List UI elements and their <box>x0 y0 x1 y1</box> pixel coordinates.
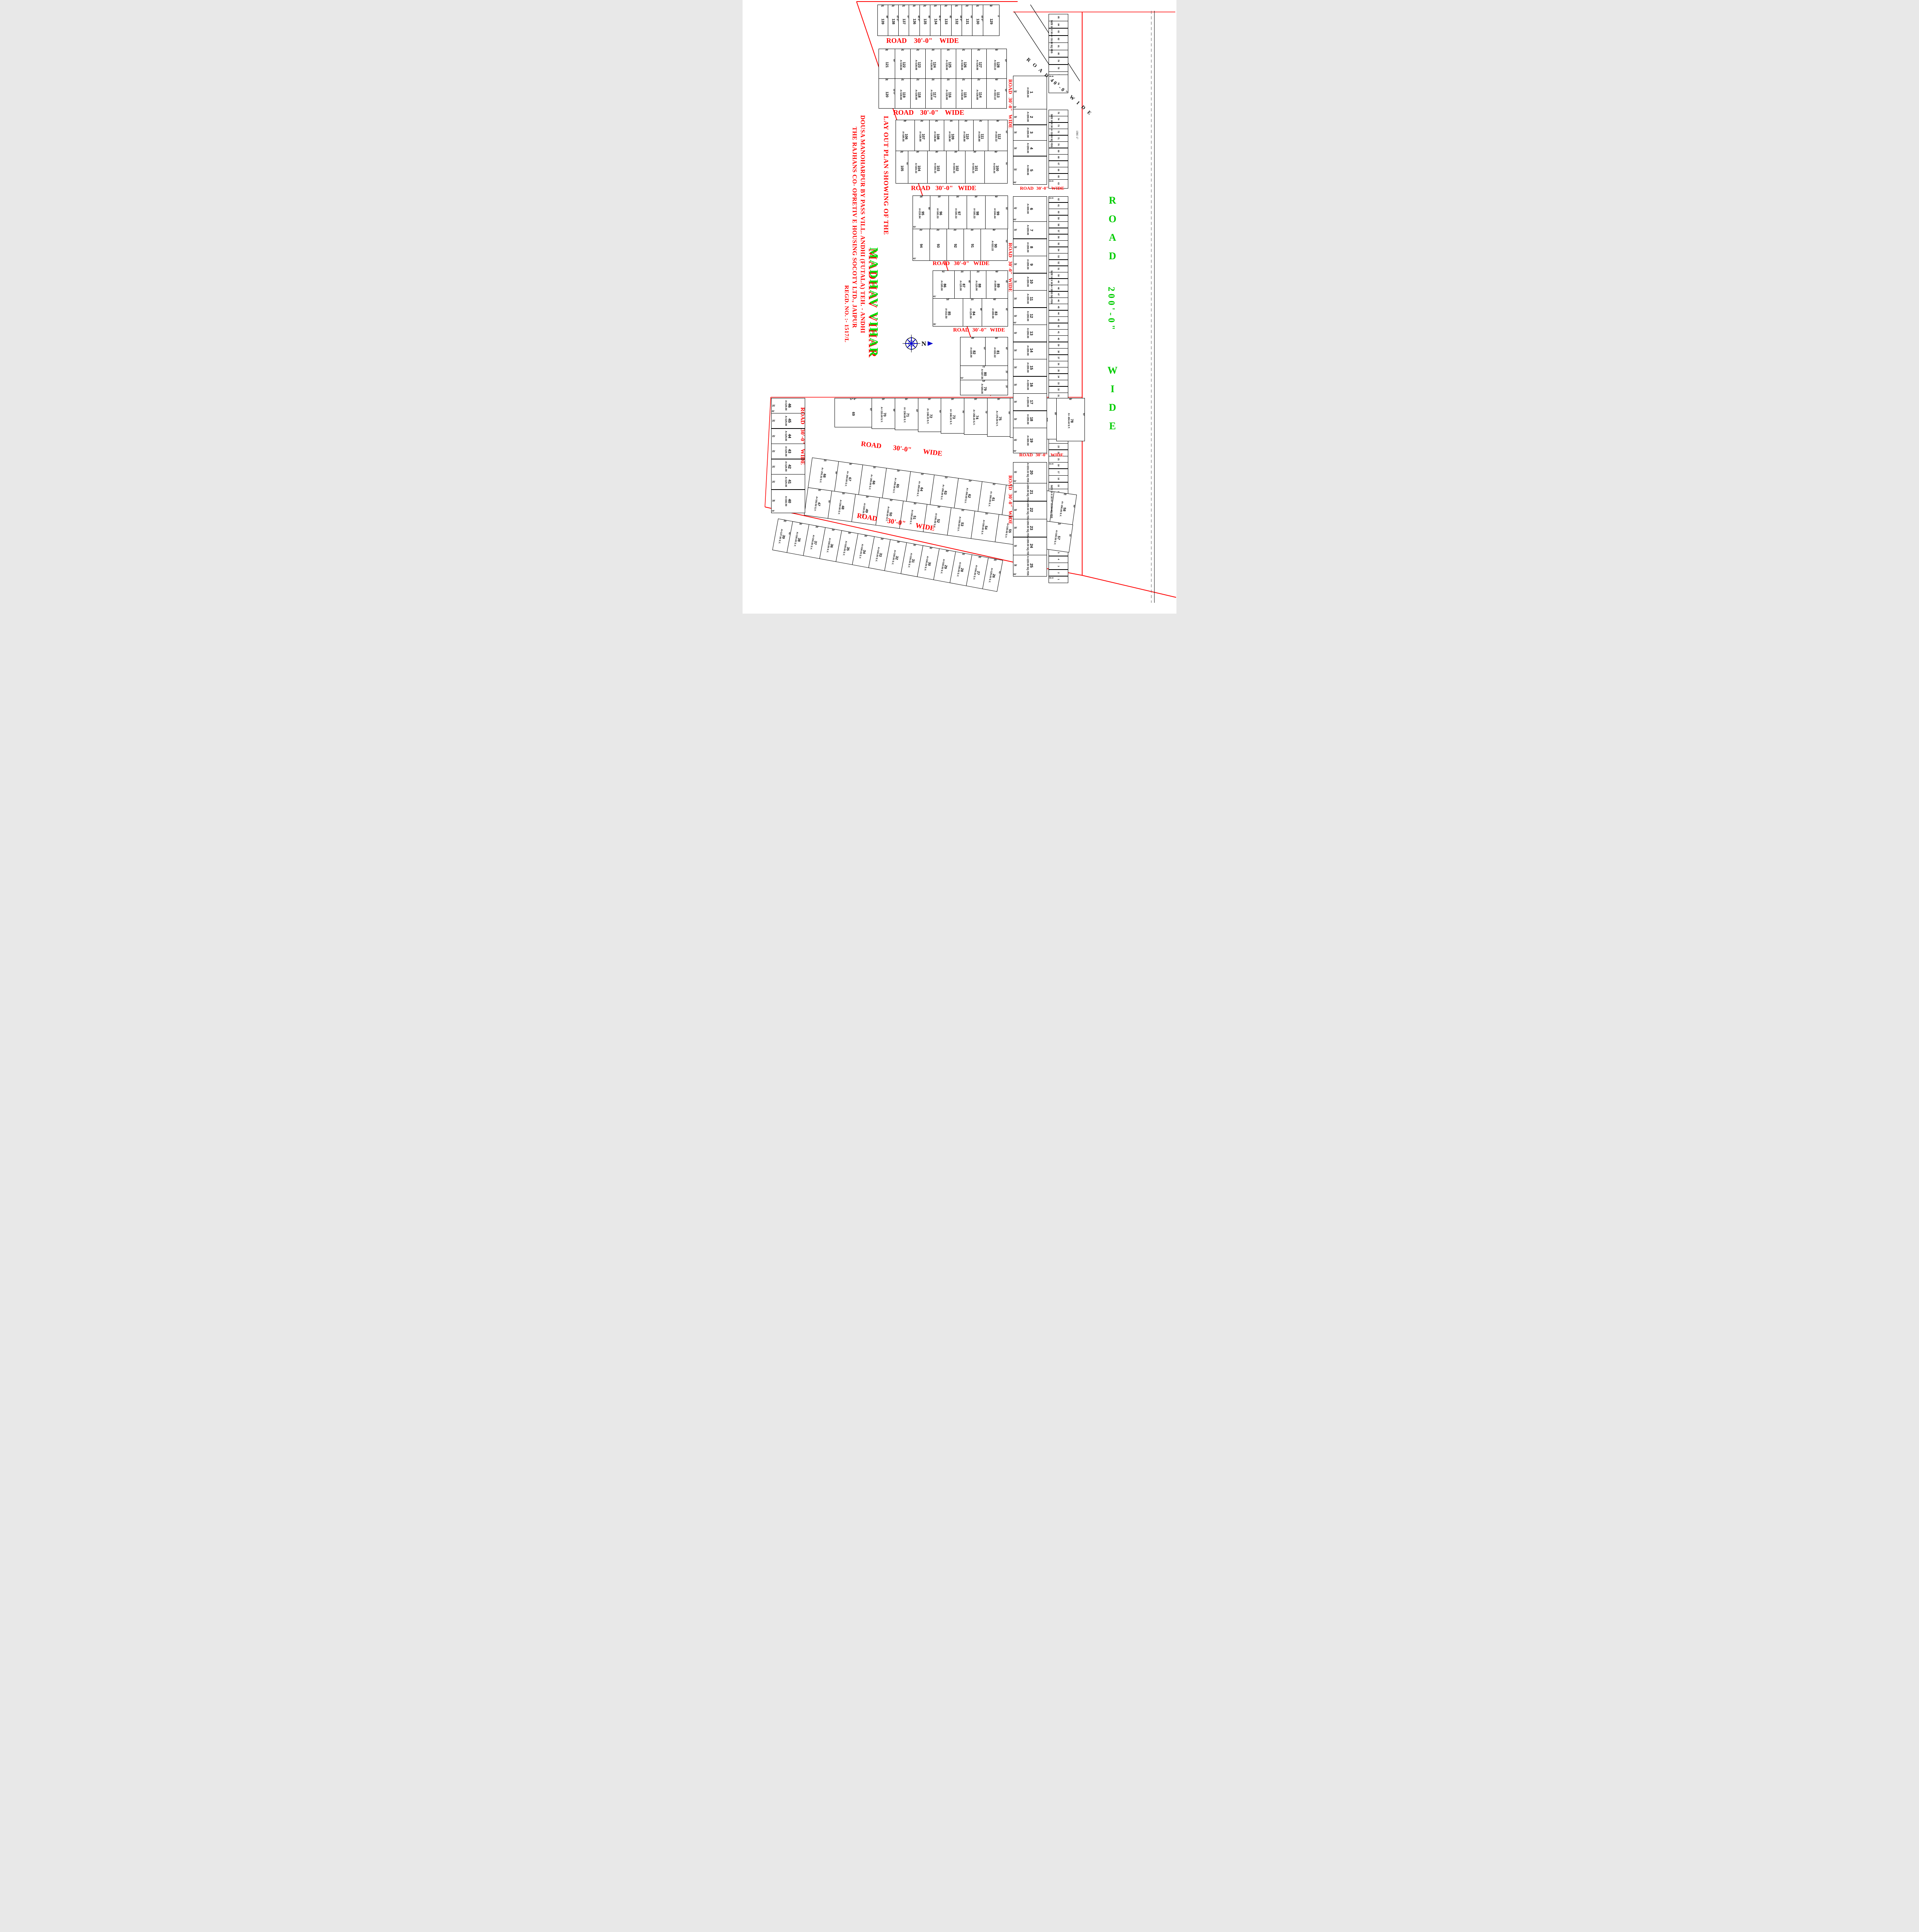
road-label: ROAD 30'-0" WIDE <box>799 407 806 465</box>
plot-number: 114 <box>978 92 982 98</box>
plot-cell: 20'13747' <box>898 5 909 36</box>
plot-number: 121 <box>885 62 889 68</box>
plot-depth-dim: 30' <box>1014 332 1017 335</box>
plot-area: A=183.33 <box>914 163 917 173</box>
plot-cell: 30'A=200.0015 <box>1013 359 1047 376</box>
strip-plot-number: 2 <box>1057 572 1059 573</box>
plot-width-dim: 25' <box>931 49 935 52</box>
strip-plot-cell: 17 <box>1049 469 1068 476</box>
plot-width-dim: 36' <box>885 49 888 52</box>
plot-number: 38 <box>797 538 802 543</box>
plot-number: 55 <box>1008 529 1012 533</box>
strip-plot-number: 65 <box>1057 175 1059 178</box>
plot-cell: 30'A=200.0011 <box>1013 290 1047 308</box>
road-label: ROAD 30'-0" WIDE <box>886 37 959 45</box>
strip-plot-number: 55 <box>1057 243 1059 245</box>
plot-extra-dim: 60' <box>1014 219 1016 221</box>
plot-cell: 20'13445'-6" <box>930 5 941 36</box>
strip-plot-cell: 66 <box>1049 167 1068 173</box>
plot-depth-dim: 25' <box>772 451 775 453</box>
strip-plot-cell: 61 <box>1049 202 1068 209</box>
plot-cell: 30'A=183.3396 <box>930 196 949 229</box>
plot-number: 81 <box>996 350 1000 354</box>
plot-number: 23 <box>1029 526 1033 530</box>
plot-cell: 54'A=169.007926' <box>960 380 1008 395</box>
plot-number: 57 <box>1057 536 1061 540</box>
strip-plot-cell: 35 <box>1049 367 1068 374</box>
plot-area: A=200.00 <box>991 308 994 318</box>
plot-area: A=200.00 <box>1027 397 1029 407</box>
plot-cell: 39'A=182.504034' <box>771 490 805 513</box>
plot-area: A=138.88 <box>899 90 902 100</box>
strip-plot-number: 16 <box>1057 478 1059 480</box>
plot-cell: 25'A=125.0088 <box>970 270 986 299</box>
plot-number: 34 <box>862 550 867 554</box>
plot-depth-dim: 30' <box>1014 545 1017 548</box>
plot-number: 1 <box>1029 91 1033 94</box>
plot-cell: 30'A=200.0016 <box>1013 376 1047 394</box>
plot-width-dim: 25' <box>916 49 920 52</box>
plot-number: 118 <box>918 92 921 98</box>
strip-plot-area: 50.00 <box>1049 197 1054 199</box>
plot-number: 84 <box>972 311 976 315</box>
plot-number: 66 <box>872 481 876 485</box>
plot-cell: 25'A=125.008745' <box>954 270 971 299</box>
strip-plot-number: 57 <box>1057 230 1059 232</box>
plot-cell: 25'91 <box>964 229 981 261</box>
plot-area: A= 404.44 S.Y. <box>1067 413 1070 429</box>
plot-cell: 45'A=300.001960' <box>1013 428 1047 453</box>
strip-plot-cell: 59 <box>1049 215 1068 222</box>
plot-area: A=200.00 <box>994 281 996 291</box>
plot-area: A=200.00 <box>1027 414 1029 424</box>
strip-plot-number: 18 <box>1057 464 1059 466</box>
plot-width-dim: 30' <box>928 398 931 401</box>
plot-area: A=138.88 <box>933 131 936 141</box>
plot-number: 139 <box>881 19 885 24</box>
plot-number: 95 <box>921 211 925 215</box>
plot-cell: 25'A=138.88124 <box>925 49 941 79</box>
title-line-1: LAY OUT PLAN SHOWING OF THE <box>882 111 890 409</box>
strip-plot-number: 41 <box>1057 331 1059 333</box>
strip-plot-cell: 4 <box>1049 556 1068 563</box>
plot-number: 64 <box>920 487 924 492</box>
strip-plot-number: 68 <box>1057 156 1059 158</box>
plot-cell: 30'A= 258.33 S.Y.7479' <box>964 398 988 435</box>
plot-number: 5 <box>1029 169 1033 172</box>
plot-number: 45 <box>787 418 792 423</box>
plot-depth-dim: 55' <box>1014 169 1017 171</box>
plot-cell: 30'A=183.33104 <box>908 151 927 184</box>
plot-area: A=200.00 <box>1027 311 1029 321</box>
plot-depth-dim: 60' <box>1073 505 1075 508</box>
plot-number: 32 <box>895 556 899 560</box>
strip-plot-cell: 57 <box>1049 228 1068 235</box>
strip-plot-number: 70 <box>1057 143 1059 146</box>
plot-depth-dim: 30' <box>1014 315 1017 318</box>
plot-area: A=138.88 <box>960 60 963 70</box>
plot-depth-dim: 30' <box>1014 247 1017 249</box>
strip-plot-cell: 53 <box>1049 253 1068 260</box>
strip-plot-number: 37 <box>1057 357 1059 359</box>
strip-plot-number: 31 <box>1057 395 1059 397</box>
strip-plot-number: 84 <box>1057 24 1059 26</box>
plot-width-dim: 25' <box>962 79 965 82</box>
plot-width-dim: 25' <box>937 229 940 232</box>
block-113-128: 36'12150'25'A=138.8812225'A=138.8812325'… <box>879 49 1007 108</box>
plot-cell: 25'A=138.88127 <box>971 49 987 79</box>
plot-cell: 25'A=125.0041 <box>771 474 805 490</box>
plot-area: A=195.55 <box>902 131 904 141</box>
strip-plot-cell: 56 <box>1049 234 1068 241</box>
plot-width-dim: 25' <box>920 229 923 232</box>
strip-plot-number: 23 <box>1057 446 1059 448</box>
strip-plot-number: 5 <box>1057 552 1059 553</box>
plot-cell: 30'A=200.008 <box>1013 239 1047 256</box>
strip-size-label: SIZE 10 X 30 A= 33.33 SQ.YDS <box>1050 114 1052 147</box>
plot-extra-dim: 60' <box>1014 182 1016 184</box>
boundary-dimension: 1581'-1" <box>1076 131 1078 139</box>
strip-plot-cell: 1850.00 <box>1049 462 1068 469</box>
plot-number: 106 <box>904 134 908 139</box>
strip-plot-cell: 67 <box>1049 161 1068 167</box>
plot-cell: 40'A= 404.44 S.Y.7893' <box>1056 398 1085 441</box>
road-label: ROAD 30'-0" WIDE <box>953 327 1005 333</box>
strip-plot-number: 82 <box>1057 38 1059 40</box>
plot-cell: 25'A=125.008445' <box>963 298 982 327</box>
plot-cell: 40'A=200.008945' <box>986 270 1008 299</box>
plot-width-dim: 20' <box>934 5 937 8</box>
compass-rose: N <box>902 332 935 355</box>
strip-size-label: SIZE 10 X 30 A= 33.33 SQ.YDS <box>1050 485 1052 518</box>
plot-area: A=200.00 <box>1027 345 1029 355</box>
plot-number: 120 <box>885 92 889 97</box>
strip-plot-cell: 60 <box>1049 209 1068 215</box>
plot-area: A=169.00 <box>981 384 983 394</box>
plot-number: 128 <box>996 62 1000 68</box>
strip-plot-number: 73 <box>1057 124 1059 127</box>
plot-number: 132 <box>955 19 959 24</box>
plot-area: A=138.88 <box>919 131 921 141</box>
plot-cell: 30'A=200.0018 <box>1013 411 1047 428</box>
plot-number: 68 <box>823 474 827 478</box>
plot-cell: 49'A=225.008250' <box>960 337 986 366</box>
plot-area: A=183.33 <box>973 208 975 218</box>
strip-plot-cell: 43 <box>1049 316 1068 323</box>
plot-area: A=255.00 <box>1027 87 1029 97</box>
plot-number: 137 <box>902 19 906 24</box>
plot-depth-dim: 39' <box>772 500 775 502</box>
plot-width-dim: 20' <box>881 5 884 8</box>
plot-number: 67 <box>848 477 852 481</box>
plot-number: 24 <box>1029 544 1033 548</box>
plot-width-dim: 20' <box>892 5 895 8</box>
plot-number: 87 <box>962 284 965 287</box>
plot-number: 86 <box>943 284 947 287</box>
plot-width-dim: 30' <box>938 196 941 199</box>
plot-depth-dim: 25' <box>772 466 775 468</box>
plot-number: 110 <box>965 134 969 139</box>
plot-area: A=125.00 <box>785 461 787 471</box>
plot-number: 27 <box>976 571 981 575</box>
plot-number: 53 <box>960 522 964 527</box>
plot-width-dim: 25' <box>916 79 920 82</box>
plot-number: 108 <box>936 134 940 139</box>
plot-cell: 25'A=138.88109 <box>944 120 959 151</box>
plot-width-dim: 40' <box>990 5 993 8</box>
plot-number: 4 <box>1029 147 1033 150</box>
plot-number: 134 <box>934 19 938 24</box>
plot-cell: 30'A=183.3398 <box>967 196 986 229</box>
strip-plot-cell: 79 <box>1049 57 1068 65</box>
plot-area: A= 258.33 S.Y. <box>972 410 975 425</box>
plot-depth-dim: 50' <box>1005 131 1007 133</box>
plot-cell: 34'A=182.50 S.Y.5745'39' <box>1042 520 1073 552</box>
plot-area: A=200.00 SQ.YDS <box>1027 519 1029 537</box>
plot-extra-dim: 45' <box>772 410 775 413</box>
strip-plot-number: 50 <box>1057 274 1059 277</box>
plot-number: 58 <box>1062 507 1067 512</box>
plot-width-dim: 25' <box>979 120 982 123</box>
plot-area: A=222.22 <box>991 241 993 251</box>
strip-plot-number: 44 <box>1057 312 1059 315</box>
title-line-2: DOUSA MANOHARPUR BY PASS VILL. ANDHI (FU… <box>859 111 866 409</box>
plot-area: A=244.44 <box>993 208 996 218</box>
plot-number: 31 <box>911 559 916 563</box>
plot-area: A=138.88 <box>960 90 963 100</box>
strip-plot-cell: 54 <box>1049 247 1068 253</box>
plot-area: A=212.50 <box>945 308 947 318</box>
plot-number: 54 <box>984 526 988 530</box>
plot-depth-dim: 36' <box>1014 565 1017 567</box>
plot-number: 70 <box>883 413 887 417</box>
east-road-dimension: 200'-0" <box>1106 287 1116 332</box>
plot-cell: 30'A=200.002 <box>1013 109 1047 125</box>
plot-area: A=138.88 <box>899 60 902 70</box>
plot-cell: 30'A=200.001260' <box>1013 308 1047 325</box>
plot-width-dim: 30' <box>973 151 976 154</box>
plot-width-dim: 30' <box>916 151 920 154</box>
plot-number: 17 <box>1029 400 1033 404</box>
plot-width-dim: 25' <box>901 49 904 52</box>
road-label: ROAD 30'-0" WIDE <box>1007 79 1013 128</box>
plot-width-dim: 40' <box>994 151 998 154</box>
plot-area: A=200.00 <box>1027 277 1029 287</box>
plot-width-dim: 40' <box>995 196 998 199</box>
plot-width-dim: 25' <box>971 229 974 232</box>
plot-number: 69 <box>852 412 855 416</box>
block-90-99: 28'A=216.949555'43'30'A=183.339630'A=183… <box>913 196 1008 260</box>
plot-number: 125 <box>948 62 952 68</box>
strip-plot-cell: 68 <box>1049 154 1068 161</box>
plot-extra-dim: 60' <box>1014 322 1016 324</box>
compass-north-arrow <box>928 341 933 346</box>
plot-depth-dim: 25' <box>772 420 775 422</box>
plot-width-dim: 20' <box>955 5 958 8</box>
plot-cell: 40'A=244.4410055' <box>984 151 1008 184</box>
plot-width-dim: 25' <box>920 120 923 123</box>
plot-cell: 20'13043'-6" <box>972 5 983 36</box>
plot-cell: 20'13847'-6" <box>888 5 899 36</box>
plot-number: 40 <box>787 499 792 503</box>
plot-depth-dim: 30' <box>1014 350 1017 352</box>
plot-area: A=216.94 <box>918 208 920 218</box>
plot-area: A=300.00 <box>1027 204 1029 214</box>
plot-area: A=200.00 <box>1027 380 1029 390</box>
plot-number: 33 <box>878 553 883 558</box>
plot-area: A=125.00 <box>785 477 787 487</box>
plot-cell: 20'13546' <box>920 5 930 36</box>
plot-cell: 20'10555' <box>896 151 909 184</box>
plot-width-dim: 25' <box>977 49 981 52</box>
plot-number: 37 <box>813 541 818 545</box>
plot-area: A=233.33 SQ.YDS <box>1027 463 1029 483</box>
strip-plot-number: 81 <box>1057 45 1059 48</box>
plot-cell: 20'13244'-6" <box>951 5 962 36</box>
plot-width-dim: 25' <box>947 49 950 52</box>
plot-cell: 25'A=138.88115 <box>956 78 971 109</box>
plot-width-dim: 41' <box>942 271 945 274</box>
strip-plot-cell: 41 <box>1049 329 1068 336</box>
plot-area: A=200.00 <box>1027 362 1029 372</box>
plot-number: 50 <box>889 512 893 517</box>
plot-number: 131 <box>965 19 969 24</box>
strip-plot-number: 21 <box>1057 458 1059 461</box>
plot-number: 103 <box>936 165 940 171</box>
strip-plot-number: 58 <box>1057 224 1059 226</box>
plot-number: 71 <box>906 413 910 417</box>
compass-north-letter: N <box>921 340 926 347</box>
strip-129-139: 20'13948'20'13847'-6"20'13747'20'13646'-… <box>877 5 999 36</box>
plot-cell: 25'92 <box>947 229 964 261</box>
plot-depth-dim: 30' <box>1014 281 1017 283</box>
plot-width-dim: 36' <box>885 79 888 82</box>
road-label: ROAD 30'-0" WIDE <box>893 109 964 117</box>
plot-number: 75 <box>998 417 1002 420</box>
plot-area: A=183.33 <box>953 163 955 173</box>
plot-number: 15 <box>1029 366 1033 370</box>
plot-area: A=183.33 <box>972 163 974 173</box>
col-1-5: 65'A=255.00160'30'A=200.00230'A=200.0033… <box>1013 76 1046 184</box>
plot-depth-dim: 45' <box>1014 439 1017 442</box>
plot-width-dim: 30' <box>997 398 1000 401</box>
plot-extra-dim: 43' <box>913 258 916 260</box>
plot-area: A=138.88 <box>976 90 978 100</box>
plot-area: A=220.00 SQ.YDS <box>1027 556 1029 576</box>
plot-area: A=222.22 <box>993 347 996 357</box>
strip-plot-number: 59 <box>1057 217 1059 219</box>
plot-width-dim: 25' <box>947 79 950 82</box>
plot-width-dim: 20' <box>913 5 916 8</box>
strip-plot-cell: 69 <box>1049 148 1068 155</box>
plot-number: 130 <box>976 19 980 24</box>
plot-depth-dim: 30' <box>1014 132 1017 134</box>
strip-plot-number: 42 <box>1057 325 1059 327</box>
strip-plot-area: 50.00 <box>1049 463 1054 465</box>
plot-number: 138 <box>891 19 895 24</box>
plot-number: 99 <box>996 211 1000 215</box>
plot-number: 47 <box>817 502 821 507</box>
plot-width-dim: 20' <box>923 5 926 8</box>
plot-number: 117 <box>933 92 937 98</box>
strip-plot-number: 3 <box>1057 566 1059 567</box>
plot-number: 123 <box>918 62 921 68</box>
plot-area: A= 270.00 S.Y. <box>996 411 998 426</box>
plot-number: 46 <box>787 403 792 408</box>
plot-cell: 30'A=200.0010 <box>1013 273 1047 291</box>
strip-plot-cell: 52 <box>1049 260 1068 266</box>
strip-plot-cell: 6250.00 <box>1049 196 1068 203</box>
plot-extra-dim: 63' <box>961 377 964 379</box>
plot-area: A=222.22 <box>993 60 996 70</box>
plot-cell: 28'A= 206.66 S.Y.5860' <box>1050 491 1077 525</box>
plot-number: 83 <box>994 311 998 315</box>
plot-extra-dim: 60' <box>1014 106 1016 109</box>
plot-extra-dim: 60' <box>1014 450 1016 452</box>
strip-plot-number: 40 <box>1057 338 1059 340</box>
plot-area: A=125.00 <box>785 431 787 441</box>
plot-area: A=200.00 SQ.YDS <box>1027 501 1029 519</box>
strip-plot-number: 36 <box>1057 363 1059 365</box>
plot-width-dim: 25' <box>977 271 980 274</box>
plot-cell: 30'A=183.33101 <box>965 151 984 184</box>
plot-cell: 36'12022'-6" <box>879 78 896 109</box>
plot-cell: 50'A=212.508535' <box>933 298 964 327</box>
plot-cell: 41'A=165.008641' <box>933 270 955 299</box>
plot-depth-dim: 45' <box>1005 308 1008 311</box>
plot-width-dim: 20' <box>900 151 903 154</box>
strip-plot-cell: 44 <box>1049 310 1068 317</box>
plot-area: A=125.00 <box>785 446 787 456</box>
strip-plot-cell: 40 <box>1049 335 1068 342</box>
block-100-112: 39'A=195.5510625'A=138.8810725'A=138.881… <box>896 120 1008 183</box>
plot-area: A=138.88 <box>930 90 932 100</box>
strip-plot-number: 53 <box>1057 255 1059 258</box>
plot-width-dim: 25' <box>935 120 938 123</box>
road-label: ROAD 30'-0" WIDE <box>1007 475 1013 524</box>
plot-area: A=138.88 <box>915 90 917 100</box>
title-line-3: THE RAJHANS CO- OPRETIV E HOUSING SOCOTY… <box>851 111 858 409</box>
plot-cell: 25'A=138.88123 <box>910 49 926 79</box>
plot-number: 9 <box>1029 264 1033 266</box>
plot-cell: 25'A=138.88110 <box>959 120 974 151</box>
plot-cell: 30'A=200.00 SQ.YDS24 <box>1013 537 1047 555</box>
plot-number: 25 <box>1029 563 1033 568</box>
plot-cell: 25'A=138.88118 <box>910 78 926 109</box>
plot-width-dim: 28' <box>920 196 923 199</box>
plot-depth-dim: 30' <box>1014 384 1017 386</box>
plot-width-dim: 30' <box>974 398 977 401</box>
plot-width-dim: 25' <box>961 271 964 274</box>
plot-depth-dim: 93' <box>1082 413 1084 416</box>
plot-area: A=138.88 <box>915 60 917 70</box>
plot-number: 97 <box>957 211 961 215</box>
strip-plot-number: 38 <box>1057 350 1059 353</box>
plot-cell: 30'A= 270.00 S.Y.7583' <box>987 398 1011 437</box>
plot-area: A=200.00 <box>1027 259 1029 269</box>
plot-cell: 25'A=138.88122 <box>895 49 910 79</box>
strip-plot-number: 54 <box>1057 249 1059 251</box>
plot-depth-dim: 30' <box>1014 418 1017 421</box>
strip-plot-cell: 3 <box>1049 563 1068 570</box>
plot-number: 82 <box>972 350 976 354</box>
road-label: ROAD 30'-0" WIDE <box>1007 243 1013 292</box>
project-name: MADHAV VIHAR <box>867 111 881 409</box>
plot-number: 119 <box>902 92 906 98</box>
plot-area: A= 248.33 S.Y. <box>949 409 952 425</box>
plot-area: A=200.00 <box>1027 143 1029 153</box>
plot-area: A=138.88 <box>977 131 980 141</box>
